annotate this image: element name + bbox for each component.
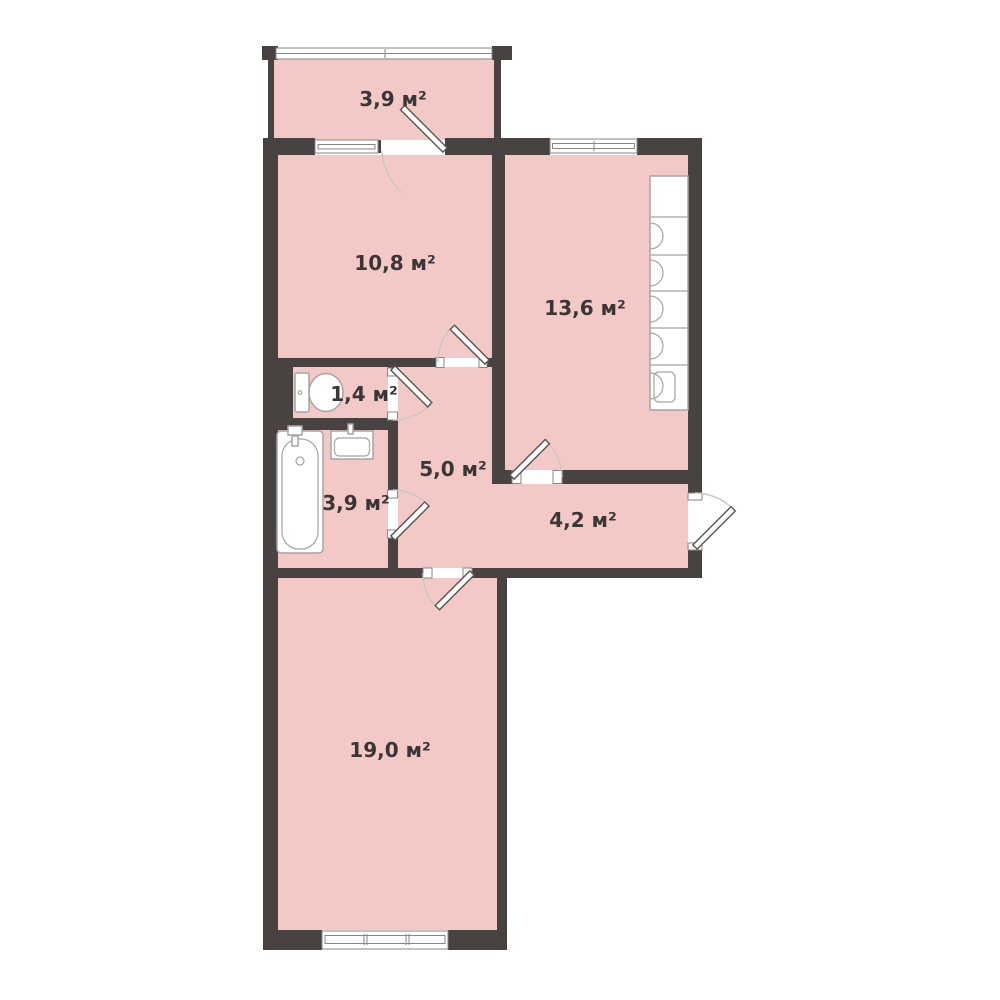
wall-bedroom-hallway: [278, 358, 438, 367]
wall-living-room-top: [472, 568, 702, 578]
bathtub-tap: [292, 436, 298, 446]
wall-balcony-left: [268, 56, 274, 140]
wall-left-thick: [278, 358, 293, 430]
area-label-bedroom: 10,8 м²: [354, 251, 435, 275]
door-leaf: [693, 507, 735, 549]
door-sill: [688, 493, 702, 500]
area-label-bathroom: 3,9 м²: [322, 491, 390, 515]
floor-plan-drawing: 3,9 м² 10,8 м² 13,6 м² 1,4 м² 5,0 м² 3,9…: [0, 0, 1000, 1000]
door-sill: [388, 412, 398, 420]
wall-kitchen-bottom: [562, 470, 702, 484]
wall-kitchen-left: [492, 138, 505, 470]
wall-living-room-right: [497, 578, 507, 950]
door-sill: [423, 568, 432, 578]
area-label-living-room: 19,0 м²: [349, 738, 430, 762]
wall-wc-bathroom: [293, 418, 388, 430]
wall-exterior-left: [263, 155, 278, 950]
door-sill: [553, 471, 562, 484]
living-room-window: [322, 931, 448, 949]
sink-basin: [331, 431, 373, 459]
bedroom-balcony-window: [315, 140, 378, 153]
wall-top-segment: [263, 138, 315, 155]
wall-kitchen-bottom: [492, 470, 512, 484]
entrance-door: [688, 493, 735, 550]
area-label-wc: 1,4 м²: [330, 382, 398, 406]
area-label-kitchen: 13,6 м²: [544, 296, 625, 320]
area-label-balcony: 3,9 м²: [359, 87, 427, 111]
wall-exterior-right: [688, 138, 702, 493]
area-label-hallway: 5,0 м²: [419, 457, 487, 481]
kitchen-counter: [650, 176, 688, 410]
wall-wc-bath-hallway: [388, 420, 398, 490]
bathtub-faucet: [288, 426, 302, 435]
door-sill: [436, 358, 444, 368]
floor-plan-canvas: 3,9 м² 10,8 м² 13,6 м² 1,4 м² 5,0 м² 3,9…: [0, 0, 1000, 1000]
wall-living-room-top: [263, 568, 423, 578]
wall-exterior-bottom: [448, 930, 507, 950]
bathtub-fixture: [277, 426, 323, 553]
wall-exterior-bottom: [263, 930, 322, 950]
sink-tap: [348, 424, 353, 434]
area-label-entry-hall: 4,2 м²: [549, 508, 617, 532]
wall-balcony-right: [494, 56, 501, 140]
